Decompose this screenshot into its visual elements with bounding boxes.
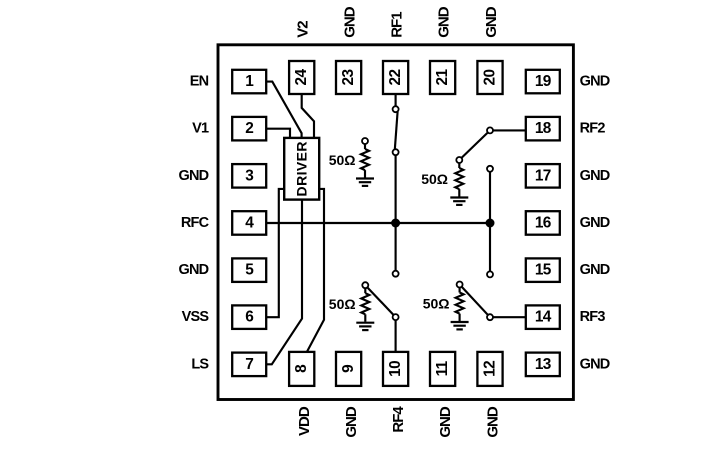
svg-text:GND: GND <box>343 406 360 438</box>
svg-text:GND: GND <box>580 168 610 184</box>
svg-text:V1: V1 <box>192 121 209 137</box>
svg-text:5: 5 <box>245 262 254 279</box>
svg-text:RF1: RF1 <box>389 12 406 38</box>
svg-text:VDD: VDD <box>296 406 313 436</box>
svg-text:10: 10 <box>387 361 404 377</box>
svg-text:15: 15 <box>535 262 552 279</box>
svg-text:23: 23 <box>340 70 357 86</box>
svg-text:12: 12 <box>482 361 499 377</box>
svg-text:19: 19 <box>535 73 551 90</box>
svg-text:50Ω: 50Ω <box>329 296 356 312</box>
svg-text:GND: GND <box>580 215 610 231</box>
svg-text:17: 17 <box>535 167 551 184</box>
svg-text:GND: GND <box>178 168 208 184</box>
svg-text:GND: GND <box>580 74 610 90</box>
svg-text:50Ω: 50Ω <box>421 171 448 187</box>
svg-text:GND: GND <box>580 262 610 278</box>
svg-text:50Ω: 50Ω <box>423 296 450 312</box>
svg-text:GND: GND <box>342 6 359 38</box>
svg-text:GND: GND <box>483 6 500 38</box>
svg-text:11: 11 <box>434 360 451 376</box>
svg-text:7: 7 <box>245 356 253 373</box>
svg-text:RF4: RF4 <box>390 406 407 433</box>
svg-text:EN: EN <box>190 74 209 90</box>
svg-text:GND: GND <box>178 262 208 278</box>
svg-text:2: 2 <box>245 120 253 137</box>
svg-text:6: 6 <box>245 309 253 326</box>
svg-text:13: 13 <box>535 356 551 373</box>
svg-text:9: 9 <box>340 365 357 373</box>
svg-text:21: 21 <box>434 69 451 86</box>
svg-text:GND: GND <box>580 356 610 372</box>
svg-text:14: 14 <box>535 309 552 326</box>
svg-text:DRIVER: DRIVER <box>293 141 309 196</box>
svg-text:RF3: RF3 <box>580 309 606 325</box>
svg-text:16: 16 <box>535 215 551 232</box>
svg-text:8: 8 <box>293 364 310 373</box>
svg-text:V2: V2 <box>295 21 312 38</box>
svg-text:VSS: VSS <box>182 309 210 325</box>
svg-text:LS: LS <box>191 356 209 372</box>
svg-text:RF2: RF2 <box>580 121 606 137</box>
svg-text:1: 1 <box>245 73 254 90</box>
svg-text:22: 22 <box>387 70 404 86</box>
svg-text:3: 3 <box>245 167 253 184</box>
svg-text:24: 24 <box>293 69 310 86</box>
svg-text:RFC: RFC <box>181 215 210 231</box>
svg-text:GND: GND <box>436 6 453 38</box>
svg-text:GND: GND <box>485 406 502 438</box>
svg-text:4: 4 <box>245 215 254 232</box>
svg-text:18: 18 <box>535 120 552 137</box>
svg-text:50Ω: 50Ω <box>329 152 356 168</box>
svg-text:20: 20 <box>482 70 499 86</box>
svg-text:GND: GND <box>437 406 454 438</box>
